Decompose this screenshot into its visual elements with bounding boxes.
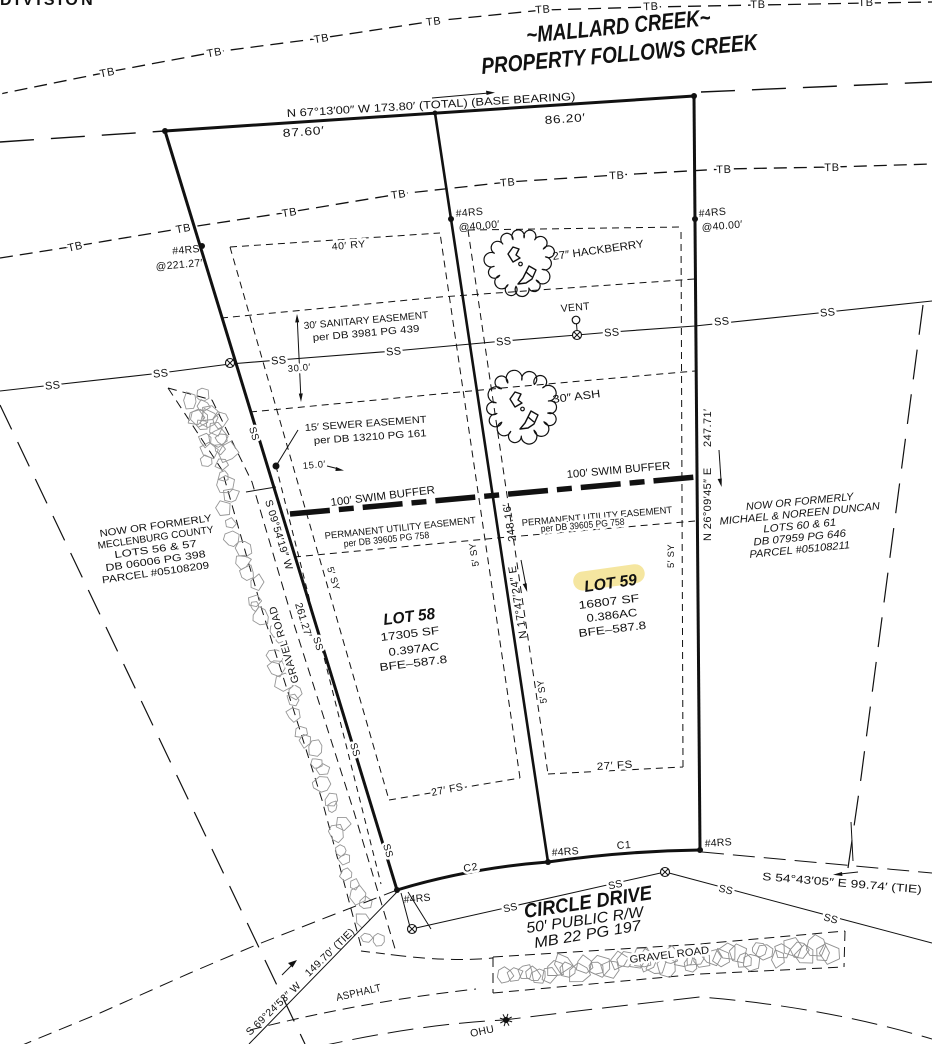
svg-text:TB: TB (716, 164, 732, 177)
svg-text:SS: SS (496, 335, 512, 348)
svg-text:SS: SS (604, 326, 620, 339)
svg-text:247.71′: 247.71′ (702, 408, 714, 447)
svg-text:VENT: VENT (560, 300, 590, 315)
svg-text:SS: SS (271, 354, 287, 367)
svg-text:#4RS: #4RS (698, 206, 726, 220)
svg-text:#4RS: #4RS (455, 206, 483, 220)
svg-text:#4RS: #4RS (172, 243, 200, 257)
svg-text:27′ FS: 27′ FS (596, 759, 633, 773)
svg-text:TB: TB (535, 3, 551, 16)
svg-text:TB: TB (609, 170, 625, 183)
svg-text:SS: SS (152, 367, 168, 381)
svg-text:#4RS: #4RS (551, 845, 579, 859)
svg-text:DIVISION: DIVISION (0, 0, 96, 9)
svg-text:TB: TB (390, 188, 407, 202)
svg-text:TB: TB (425, 15, 442, 29)
svg-text:30.0′: 30.0′ (287, 362, 311, 375)
svg-text:C1: C1 (616, 839, 631, 852)
svg-text:TB: TB (824, 162, 839, 174)
svg-text:5′ SY: 5′ SY (666, 544, 677, 568)
svg-text:TB: TB (313, 32, 330, 46)
svg-text:SS: SS (714, 315, 730, 328)
svg-text:SS: SS (386, 345, 402, 358)
svg-text:TB: TB (500, 176, 516, 189)
svg-text:N 26°09′45″ E: N 26°09′45″ E (702, 467, 714, 541)
svg-text:SS: SS (44, 379, 60, 393)
svg-text:#4RS: #4RS (704, 836, 732, 850)
svg-text:#4RS: #4RS (403, 892, 431, 906)
svg-text:SS: SS (819, 306, 835, 320)
svg-text:TB: TB (281, 206, 298, 220)
svg-text:15.0′: 15.0′ (302, 459, 326, 472)
svg-text:TB: TB (858, 0, 873, 9)
svg-text:C2: C2 (463, 861, 479, 875)
svg-text:TB: TB (750, 0, 765, 11)
